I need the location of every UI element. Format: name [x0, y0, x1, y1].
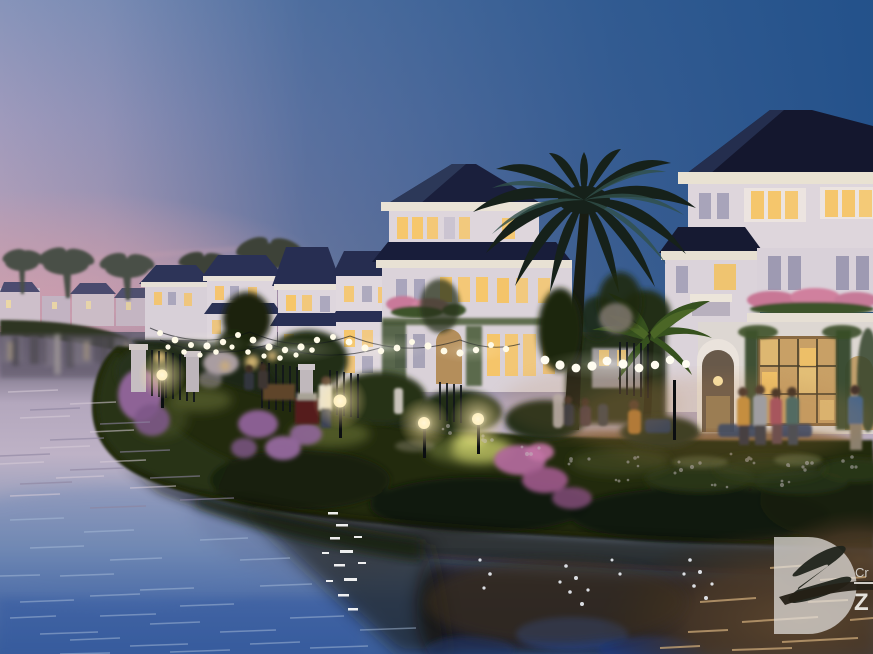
svg-text:Z: Z: [854, 589, 869, 616]
svg-text:Cr: Cr: [855, 565, 869, 580]
